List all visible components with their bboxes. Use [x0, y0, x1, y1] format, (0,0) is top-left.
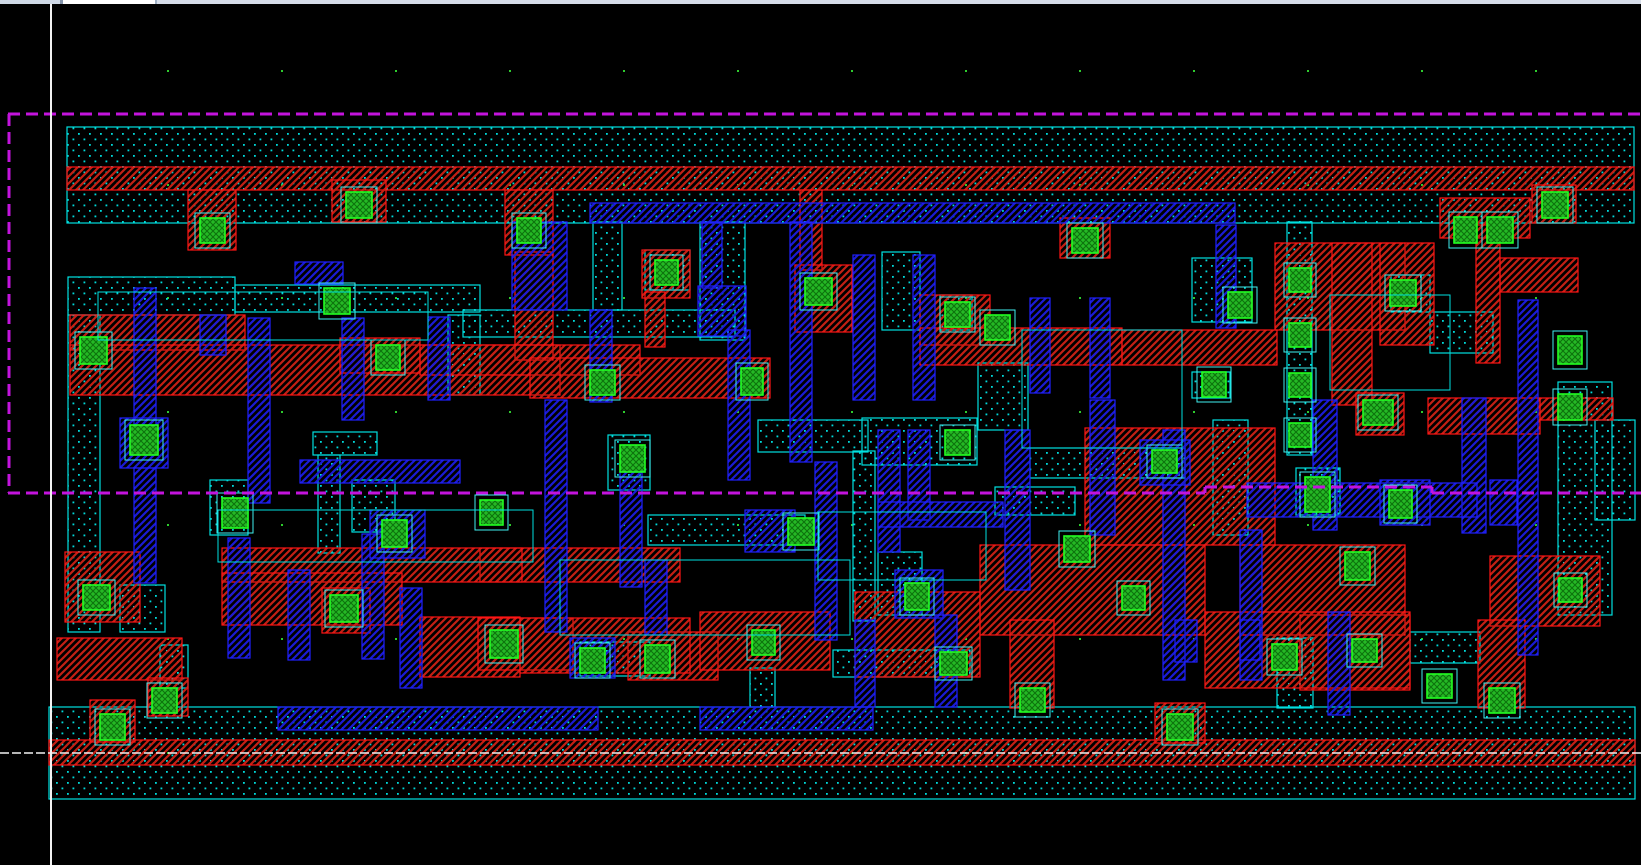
topbar-white-tab [63, 0, 155, 4]
topbar-divider-2 [155, 0, 157, 4]
layout-editor-window [0, 0, 1641, 865]
topbar-right [157, 0, 1641, 4]
topbar-left [0, 0, 60, 4]
topbar-divider-1 [60, 0, 63, 4]
window-topbar[interactable] [0, 0, 1641, 4]
layout-canvas[interactable] [0, 0, 1641, 865]
